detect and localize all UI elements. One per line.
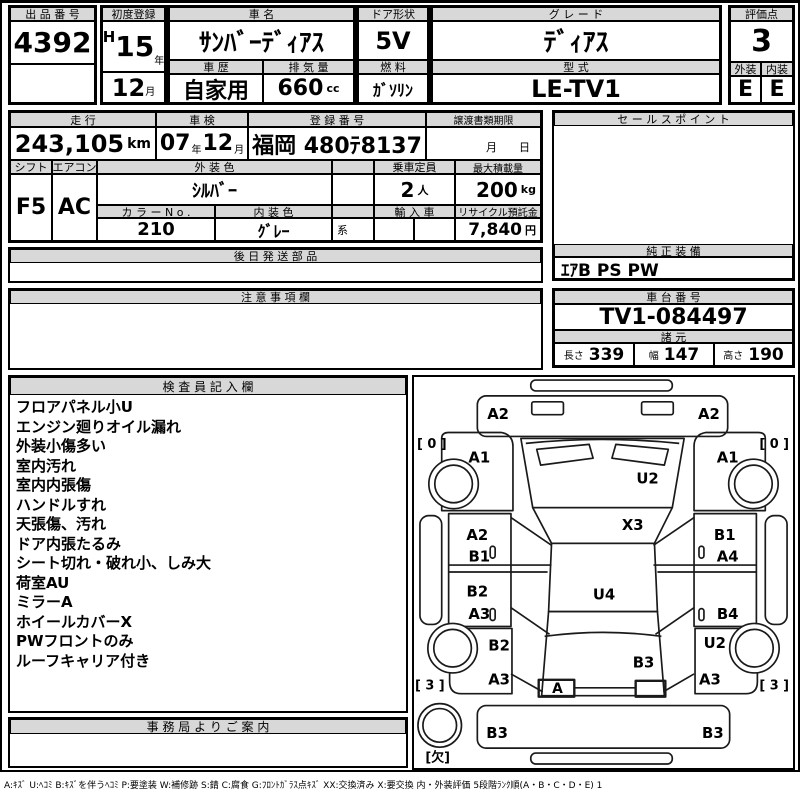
transfer-deadline-header: 譲渡書類期限	[426, 112, 541, 127]
exterior-header: 外装	[730, 62, 761, 76]
damage-label: A4	[717, 549, 739, 566]
max-load-header: 最大積載量	[455, 160, 541, 174]
imported-value-1	[374, 218, 414, 241]
dimension-height: 高さ190	[714, 343, 793, 366]
history-value: 自家用	[169, 74, 263, 103]
capacity-value: 2人	[374, 174, 455, 205]
auction-sheet: { "top": { "auction_no": {"label":"出 品 番…	[0, 0, 800, 800]
damage-label: A2	[466, 527, 488, 544]
shaken-value: 07年12月	[156, 127, 248, 160]
model-code-value: LE-TV1	[432, 74, 720, 103]
damage-label: [ 3 ]	[415, 678, 445, 693]
sales-point-content	[554, 126, 793, 244]
grade-box: グ レ ー ド ﾃﾞｨｱｽ 型 式 LE-TV1	[430, 5, 722, 105]
grade-value: ﾃﾞｨｱｽ	[432, 21, 720, 60]
int-color-suffix: 系	[332, 218, 374, 241]
fuel-header: 燃 料	[358, 60, 428, 74]
auction-no-empty	[10, 64, 95, 103]
damage-label: B3	[633, 655, 655, 672]
damage-label: U2	[704, 635, 726, 652]
info-box: 走 行 車 検 登 録 番 号 譲渡書類期限 243,105km 07年12月 …	[8, 110, 543, 243]
damage-label: A1	[717, 450, 739, 467]
door-handle	[699, 546, 704, 558]
interior-value: E	[761, 76, 793, 103]
wiper-right	[612, 444, 668, 465]
shift-header: シフト	[10, 160, 52, 174]
front-panel-band	[533, 508, 673, 544]
car-damage-map: A2A2[ 0 ][ 0 ]A1A1U2X3A2B1B1A4B2U4A3B4B2…	[414, 377, 793, 768]
int-color-header: 内 装 色	[215, 205, 332, 218]
inspector-header: 検 査 員 記 入 欄	[10, 377, 406, 395]
inspector-notes: フロアパネル小Uエンジン廻りオイル漏れ外装小傷多い室内汚れ室内内張傷ハンドルすれ…	[16, 398, 404, 708]
reg-no-value: 福岡 480ﾃ8137	[248, 127, 426, 160]
inspector-note-line: フロアパネル小U	[16, 398, 404, 418]
later-parts-box: 後 日 発 送 部 品	[8, 247, 543, 283]
interior-header: 内装	[761, 62, 793, 76]
door-value: 5V	[358, 21, 428, 60]
damage-labels: A2A2[ 0 ][ 0 ]A1A1U2X3A2B1B1A4B2U4A3B4B2…	[415, 406, 789, 765]
inspector-note-line: 天張傷、汚れ	[16, 515, 404, 535]
car-name-header: 車 名	[169, 7, 354, 21]
door-handle	[699, 609, 704, 621]
office-notice-content	[10, 734, 406, 766]
dimensions-header: 諸 元	[554, 330, 793, 343]
sales-point-header: セ ー ル ス ポ イ ン ト	[554, 112, 793, 126]
aircon-header: エアコン	[52, 160, 97, 174]
ext-color-header: 外 装 色	[97, 160, 332, 174]
ext-color-value: ｼﾙﾊﾞｰ	[97, 174, 332, 205]
damage-label: U2	[636, 470, 658, 487]
inspector-box: 検 査 員 記 入 欄 フロアパネル小Uエンジン廻りオイル漏れ外装小傷多い室内汚…	[8, 375, 408, 713]
reg-no-header: 登 録 番 号	[248, 112, 426, 127]
aircon-value: AC	[52, 174, 97, 241]
damage-label: [ 0 ]	[759, 437, 789, 452]
ext-color-suffix-header	[332, 160, 374, 174]
office-notice-header: 事 務 局 よ り ご 案 内	[10, 719, 406, 734]
inspector-note-line: ドア内張たるみ	[16, 535, 404, 555]
mileage-header: 走 行	[10, 112, 156, 127]
damage-label: A3	[699, 671, 721, 688]
damage-label: B2	[467, 583, 489, 600]
inspector-note-line: PWフロントのみ	[16, 632, 404, 652]
dimension-length: 長さ339	[554, 343, 634, 366]
door-box: ドア形状 5V 燃 料 ｶﾞｿﾘﾝ	[356, 5, 430, 105]
int-color-value: ｸﾞﾚｰ	[215, 218, 332, 241]
frame-top	[0, 0, 800, 3]
inspector-note-line: ルーフキャリア付き	[16, 652, 404, 672]
genuine-equipment-header: 純 正 装 備	[554, 244, 793, 257]
later-parts-content	[10, 263, 541, 281]
inspector-note-line: 室内汚れ	[16, 457, 404, 477]
model-code-header: 型 式	[432, 60, 720, 74]
auction-no-value: 4392	[10, 21, 95, 64]
damage-label: B3	[486, 725, 508, 742]
caution-box: 注 意 事 項 欄	[8, 288, 543, 370]
mileage-value: 243,105km	[10, 127, 156, 160]
damage-label: B4	[717, 606, 739, 623]
damage-label: A	[552, 681, 563, 697]
damage-label: X3	[622, 517, 644, 534]
inspector-note-line: ホイールカバーX	[16, 613, 404, 633]
sill-right	[765, 516, 787, 625]
int-color-suffix-header	[332, 205, 374, 218]
transfer-deadline-value: 月日	[426, 127, 541, 160]
capacity-header: 乗車定員	[374, 160, 455, 174]
door-handle	[490, 609, 495, 621]
exterior-value: E	[730, 76, 761, 103]
front-bumper	[477, 396, 727, 437]
rear-plate-right	[636, 681, 666, 697]
max-load-value: 200kg	[455, 174, 541, 205]
displacement-header: 排 気 量	[263, 60, 354, 74]
car-name-box: 車 名 ｻﾝﾊﾞｰﾃﾞｨｱｽ 車 歴 排 気 量 自家用 660cc	[167, 5, 356, 105]
inspector-note-line: 外装小傷多い	[16, 437, 404, 457]
imported-value-2	[414, 218, 455, 241]
damage-label: B2	[488, 638, 510, 655]
rear-window-line	[545, 632, 662, 636]
color-no-value: 210	[97, 218, 215, 241]
inspector-note-line: ミラーA	[16, 593, 404, 613]
damage-label: B1	[714, 527, 736, 544]
frame-bottom	[0, 770, 800, 772]
inspector-note-line: ハンドルすれ	[16, 496, 404, 516]
caution-header: 注 意 事 項 欄	[10, 290, 541, 304]
frame-left	[0, 0, 2, 772]
fuel-value: ｶﾞｿﾘﾝ	[358, 74, 428, 103]
shaken-header: 車 検	[156, 112, 248, 127]
damage-label: A2	[487, 406, 509, 423]
legend: A:ｷｽﾞ U:ﾍｺﾐ B:ｷｽﾞを伴うﾍｺﾐ P:要塗装 W:補修跡 S:錆 …	[4, 778, 798, 791]
history-header: 車 歴	[169, 60, 263, 74]
damage-label: A2	[698, 406, 720, 423]
damage-label: A3	[488, 671, 510, 688]
sill-left	[420, 516, 442, 625]
color-no-header: カ ラ ー N o .	[97, 205, 215, 218]
chassis-no-value: TV1-084497	[554, 304, 793, 330]
damage-diagram-box: A2A2[ 0 ][ 0 ]A1A1U2X3A2B1B1A4B2U4A3B4B2…	[412, 375, 795, 770]
front-grille-left	[532, 402, 564, 415]
inspector-note-line: 室内内張傷	[16, 476, 404, 496]
auction-no-box: 出 品 番 号 4392	[8, 5, 97, 105]
front-grille-right	[642, 402, 674, 415]
first-reg-box: 初度登録 H15年 12月	[100, 5, 167, 105]
score-value: 3	[730, 21, 793, 62]
score-box: 評価点 3 外装 内装 E E	[728, 5, 795, 105]
sales-point-box: セ ー ル ス ポ イ ン ト 純 正 装 備 ｴｱB PS PW	[552, 110, 795, 281]
grade-header: グ レ ー ド	[432, 7, 720, 21]
rear-bottom-bar	[531, 753, 673, 764]
first-reg-month: 12月	[102, 72, 165, 103]
chassis-no-header: 車 台 番 号	[554, 290, 793, 304]
inspector-note-line: エンジン廻りオイル漏れ	[16, 418, 404, 438]
damage-label: B1	[468, 549, 490, 566]
first-reg-header: 初度登録	[102, 7, 165, 21]
damage-label: [ 3 ]	[759, 678, 789, 693]
damage-label: [ 0 ]	[417, 437, 447, 452]
recycle-deposit-value: 7,840円	[455, 218, 541, 241]
era-letter: H	[103, 28, 116, 46]
door-header: ドア形状	[358, 7, 428, 21]
wiper-left	[537, 444, 593, 465]
auction-no-header: 出 品 番 号	[10, 7, 95, 21]
belt-lines	[449, 565, 757, 572]
damage-label: A3	[468, 606, 490, 623]
genuine-equipment-value: ｴｱB PS PW	[554, 257, 793, 279]
office-notice-box: 事 務 局 よ り ご 案 内	[8, 717, 408, 768]
shift-value: F5	[10, 174, 52, 241]
damage-label: B3	[702, 725, 724, 742]
car-name-value: ｻﾝﾊﾞｰﾃﾞｨｱｽ	[169, 21, 354, 60]
damage-label: U4	[593, 586, 615, 603]
inspector-note-line: シート切れ・破れ小、しみ大	[16, 554, 404, 574]
chassis-box: 車 台 番 号 TV1-084497 諸 元 長さ339 幅147 高さ190	[552, 288, 795, 368]
dimension-width: 幅147	[634, 343, 714, 366]
cowl-line	[526, 439, 679, 443]
inspector-note-line: 荷室AU	[16, 574, 404, 594]
door-handle	[490, 546, 495, 558]
front-top-bar	[531, 380, 673, 391]
damage-label: A1	[468, 450, 490, 467]
damage-label: [欠]	[425, 750, 450, 766]
ext-color-suffix-cell	[332, 174, 374, 205]
caution-content	[10, 304, 541, 368]
later-parts-header: 後 日 発 送 部 品	[10, 249, 541, 263]
score-header: 評価点	[730, 7, 793, 21]
recycle-deposit-header: リサイクル預託金	[455, 205, 541, 218]
imported-header: 輸 入 車	[374, 205, 455, 218]
rear-bumper	[477, 706, 729, 749]
first-reg-year: H15年	[102, 21, 165, 72]
displacement-value: 660cc	[263, 74, 354, 103]
